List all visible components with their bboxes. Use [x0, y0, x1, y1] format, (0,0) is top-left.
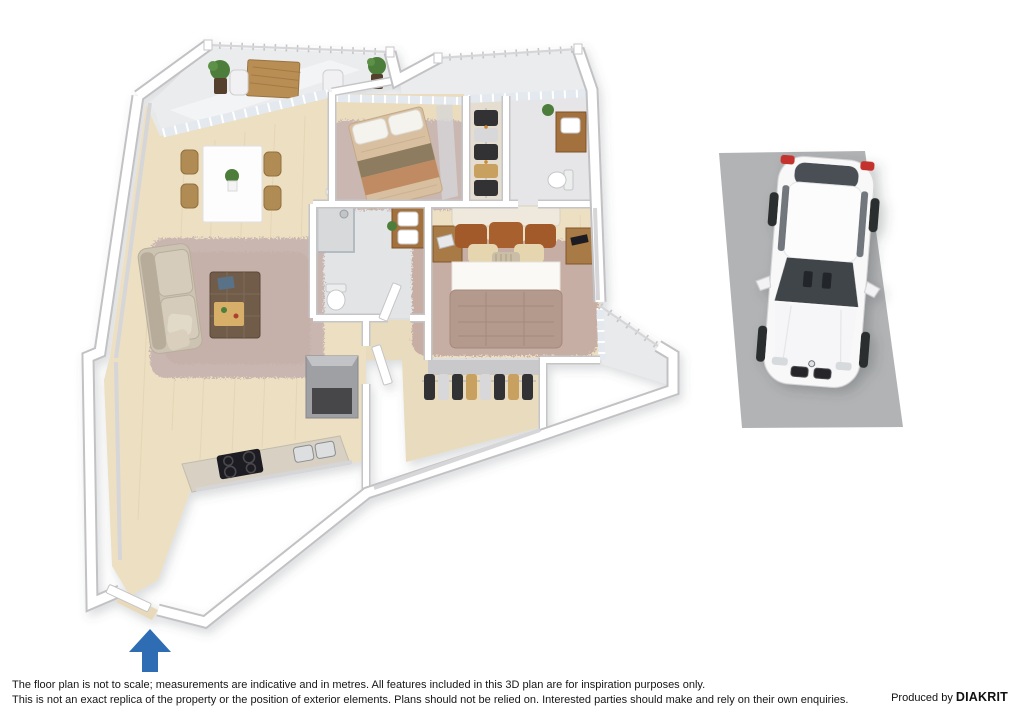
railing-post: [574, 44, 582, 54]
shower-tray: [318, 208, 354, 252]
books: [217, 276, 235, 290]
car-roof: [783, 181, 863, 263]
headlight: [835, 362, 852, 371]
taillight: [780, 155, 795, 165]
grille: [791, 366, 809, 377]
floor-plan: [88, 40, 673, 622]
taillight: [860, 161, 875, 171]
car-seat: [822, 272, 832, 289]
alcove-back-wall: [428, 360, 540, 375]
hanging-clothes: [474, 128, 498, 142]
plant: [387, 221, 397, 231]
floor-plan-page: The floor plan is not to scale; measurem…: [0, 0, 1024, 724]
refrigerator: [306, 356, 358, 418]
dining-chair: [264, 152, 281, 176]
toilet: [548, 170, 573, 190]
car-badge: [808, 360, 814, 366]
tray-decor: [234, 314, 239, 319]
producer-brand: DIAKRIT: [956, 690, 1008, 704]
duvet: [450, 290, 562, 348]
car-space: [719, 151, 903, 428]
hanging-clothes: [474, 144, 498, 160]
basin: [561, 118, 580, 133]
plant: [542, 104, 554, 116]
dining-chair: [181, 184, 198, 208]
tray: [214, 302, 244, 326]
disclaimer-line1: The floor plan is not to scale; measurem…: [12, 678, 848, 693]
headlight: [772, 357, 789, 366]
tray-plant: [221, 307, 227, 313]
outdoor-chair: [230, 70, 248, 95]
shower-head: [340, 210, 348, 218]
dining-chair: [181, 150, 198, 174]
sofa-cushion: [154, 249, 194, 297]
car-seat: [803, 271, 813, 288]
hanging-clothes: [474, 110, 498, 126]
floor-plan-image: [0, 0, 1024, 724]
dining-chair: [264, 186, 281, 210]
basin: [398, 230, 418, 244]
wardrobe-alcove: [422, 360, 540, 400]
pillow-rust: [489, 222, 523, 248]
entrance-arrow: [129, 629, 171, 672]
coffee-table: [210, 272, 260, 338]
walk-in-wardrobe: [474, 108, 498, 198]
railing-post: [386, 47, 394, 57]
hanging-clothes: [474, 164, 498, 178]
toilet: [326, 284, 346, 310]
nightstand-right: [566, 228, 594, 264]
railing-post: [204, 40, 212, 50]
hanging-clothes: [474, 180, 498, 196]
windshield: [775, 257, 862, 307]
bed-master: [450, 206, 562, 348]
producer-credit: Produced by DIAKRIT: [891, 690, 1008, 704]
disclaimer: The floor plan is not to scale; measurem…: [12, 678, 848, 708]
disclaimer-line2: This is not an exact replica of the prop…: [12, 693, 848, 708]
outdoor-table: [246, 60, 300, 99]
grille: [814, 368, 832, 379]
plant-vase: [228, 181, 237, 191]
basin: [398, 212, 418, 226]
vanity: [387, 208, 424, 248]
railing-post: [434, 53, 442, 63]
producer-prefix: Produced by: [891, 692, 956, 704]
